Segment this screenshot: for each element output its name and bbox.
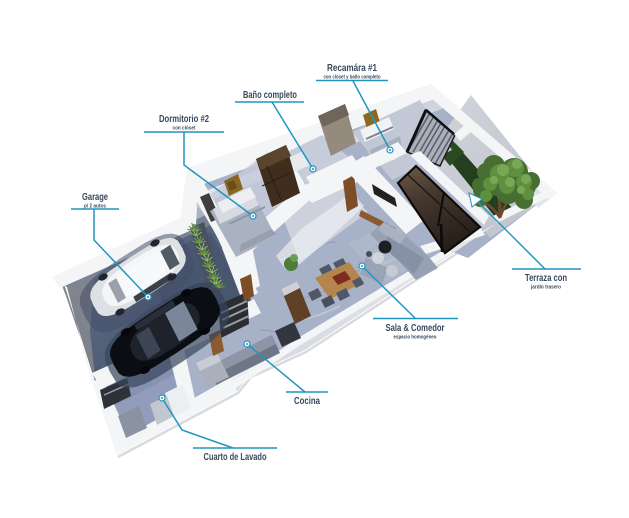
svg-text:Terraza con: Terraza con [525, 272, 567, 284]
svg-text:con clóset y baño completo: con clóset y baño completo [324, 75, 381, 81]
svg-text:jardín trasero: jardín trasero [530, 285, 561, 291]
svg-text:Dormitorio #2: Dormitorio #2 [159, 113, 209, 125]
svg-text:Baño completo: Baño completo [243, 89, 297, 101]
svg-text:con clóset: con clóset [173, 126, 196, 132]
svg-text:Cuarto de Lavado: Cuarto de Lavado [204, 451, 267, 463]
svg-text:espacio homogéneo: espacio homogéneo [394, 335, 437, 341]
svg-text:Sala & Comedor: Sala & Comedor [386, 322, 445, 334]
svg-text:Garage: Garage [82, 191, 108, 203]
svg-text:Recamára #1: Recamára #1 [327, 62, 377, 74]
svg-text:Cocina: Cocina [294, 395, 320, 407]
svg-text:p/ 2 autos: p/ 2 autos [84, 204, 106, 210]
